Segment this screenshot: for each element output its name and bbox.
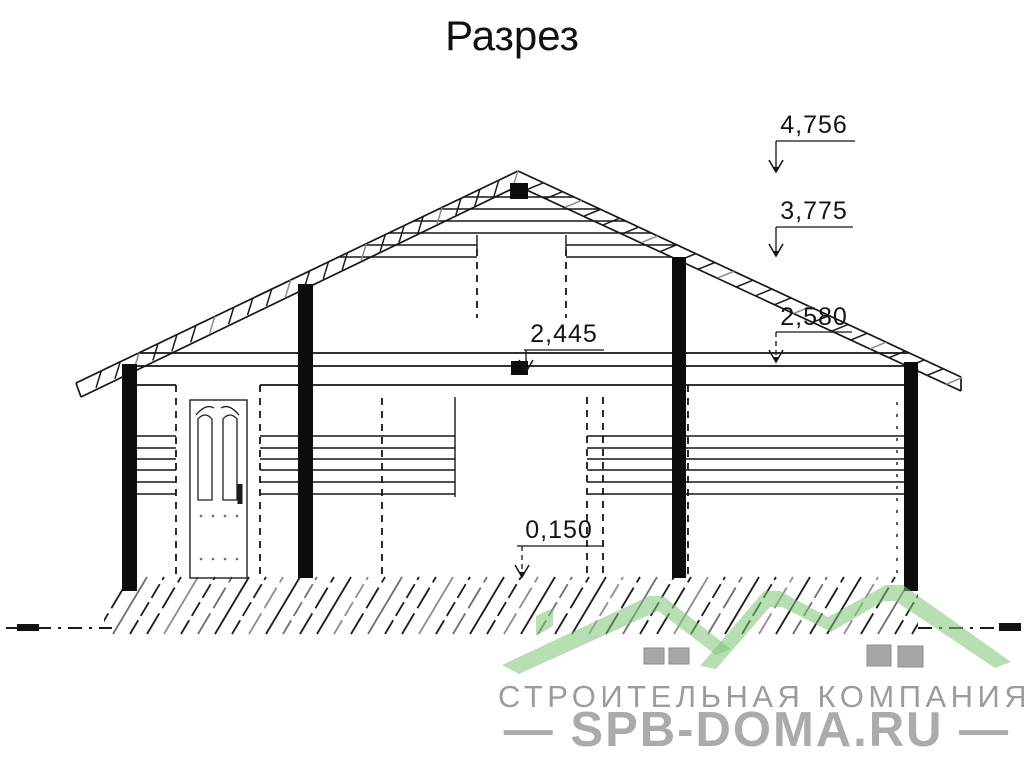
section-drawing-sheet: Разрез 4,756 3,775 2,580 2,445 0,150 СТР… bbox=[0, 0, 1024, 768]
left-wall-post bbox=[122, 364, 137, 591]
ground-baseline bbox=[6, 623, 1021, 631]
door-dots bbox=[200, 515, 239, 561]
right-wall-post bbox=[904, 362, 918, 591]
drawing-title: Разрез bbox=[0, 12, 1024, 60]
roof-band-right bbox=[518, 171, 961, 391]
dimension-arrows bbox=[515, 160, 783, 577]
entry-door bbox=[190, 400, 247, 578]
dimension-label-roof: 3,775 bbox=[772, 197, 856, 226]
roof-band-left bbox=[76, 171, 518, 397]
house-cross-section bbox=[0, 0, 1024, 768]
logo-roofs-icon bbox=[502, 585, 1011, 674]
door-handle bbox=[238, 484, 243, 504]
interior-post-left bbox=[298, 284, 313, 578]
logo-window-icons bbox=[644, 645, 923, 667]
interior-post-right bbox=[672, 257, 686, 578]
dimension-label-plinth: 0,150 bbox=[514, 516, 604, 545]
dimension-label-ridge: 4,756 bbox=[772, 111, 856, 140]
ridge-beam bbox=[510, 183, 528, 199]
dimension-label-eaves: 2,580 bbox=[772, 303, 856, 332]
dimension-label-ceiling: 2,445 bbox=[520, 320, 608, 349]
watermark-site-name: — SPB-DOMA.RU — bbox=[484, 705, 1024, 756]
